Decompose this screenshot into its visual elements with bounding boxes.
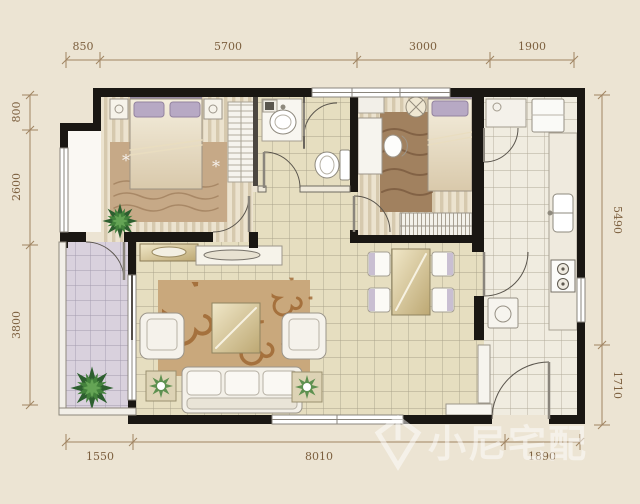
pillow xyxy=(134,102,164,117)
wall-bedroom2-kitchen xyxy=(472,97,484,252)
bath-accessory xyxy=(265,102,274,110)
dim-label-right-5490: 5490 xyxy=(611,206,624,234)
window-left xyxy=(60,148,68,232)
sofa-cushion xyxy=(187,371,221,395)
pillow xyxy=(432,101,468,116)
pillow xyxy=(170,102,200,117)
entry-floor xyxy=(484,330,577,415)
plant-pot xyxy=(157,382,165,390)
dim-label-right-1710: 1710 xyxy=(611,371,624,399)
window-top xyxy=(312,88,450,97)
burner-dot xyxy=(561,267,564,270)
dim-label-left-3800: 3800 xyxy=(10,311,23,339)
wall-bedroom-bottom-b xyxy=(124,232,213,242)
wall-right-upper xyxy=(577,97,585,278)
rug-flower-motif: * xyxy=(212,157,220,176)
desk-chair xyxy=(384,135,402,157)
burner-dot xyxy=(561,282,564,285)
floor-plan-drawing: * * xyxy=(0,0,640,504)
wall-bedroom2-left-a xyxy=(350,97,358,192)
kitchen-cabinet xyxy=(486,99,526,127)
chair-back-pad xyxy=(369,289,375,311)
bay-window-floor xyxy=(68,131,101,232)
sink-faucet-icon xyxy=(548,211,553,216)
bedroom2-rug xyxy=(380,112,432,212)
dim-right xyxy=(594,91,610,429)
nightstand xyxy=(110,99,128,119)
sliding-door-balcony xyxy=(128,275,136,400)
faucet-icon xyxy=(281,105,286,110)
plant-pot xyxy=(303,383,311,391)
dim-label-bottom-1550: 1550 xyxy=(86,450,114,463)
rug-flower-motif: * xyxy=(122,151,130,170)
dim-top xyxy=(62,52,578,68)
watermark-text: 小尼宅配 xyxy=(428,422,588,466)
wall-bottom-left xyxy=(128,415,272,424)
wall-bedroom-bottom-a xyxy=(60,232,86,242)
balcony-plant-icon xyxy=(70,366,113,409)
shoe-cabinet xyxy=(446,404,492,415)
wall-balcony-stub-top xyxy=(128,242,136,275)
chair-back-pad xyxy=(369,253,375,275)
wall-left-a xyxy=(60,131,68,148)
dim-label-top-850: 850 xyxy=(73,40,94,53)
dim-label-left-2600: 2600 xyxy=(10,173,23,201)
balcony-rail-bottom xyxy=(59,408,136,415)
sofa-seat-front xyxy=(187,398,297,409)
chair-back-pad xyxy=(447,253,453,275)
wall-bedroom2-bottom xyxy=(350,235,480,243)
washing-machine xyxy=(488,298,518,328)
dim-label-bottom-8010: 8010 xyxy=(305,450,333,463)
toilet-tank xyxy=(340,150,350,180)
wall-left-jog xyxy=(60,123,101,131)
closet-box xyxy=(358,97,384,113)
wall-hall-stub xyxy=(249,232,258,248)
wall-right-lower xyxy=(577,322,585,424)
dim-label-top-5700: 5700 xyxy=(214,40,242,53)
dim-label-top-3000: 3000 xyxy=(409,40,437,53)
balcony-rail-left xyxy=(59,242,66,414)
chair-back-pad xyxy=(447,289,453,311)
tall-cabinet xyxy=(478,345,490,403)
wash-basin xyxy=(270,110,296,134)
wall-top-right xyxy=(450,88,585,97)
dim-label-top-1900: 1900 xyxy=(518,40,546,53)
wall-kitchen-left-lower xyxy=(474,296,484,340)
wall-bedroom-bath-thin xyxy=(253,97,258,186)
dim-left xyxy=(22,91,38,409)
nightstand xyxy=(204,99,222,119)
sofa-cushion xyxy=(225,371,259,395)
dim-label-left-800: 800 xyxy=(10,102,23,123)
tv xyxy=(204,250,260,260)
desk xyxy=(358,118,382,174)
window-bottom xyxy=(272,415,403,424)
floor-plan-page: * * xyxy=(0,0,640,504)
bath-wall-seg xyxy=(300,186,350,192)
decor-bowl xyxy=(152,247,186,257)
window-right xyxy=(577,278,585,322)
wall-top-left xyxy=(93,88,312,97)
